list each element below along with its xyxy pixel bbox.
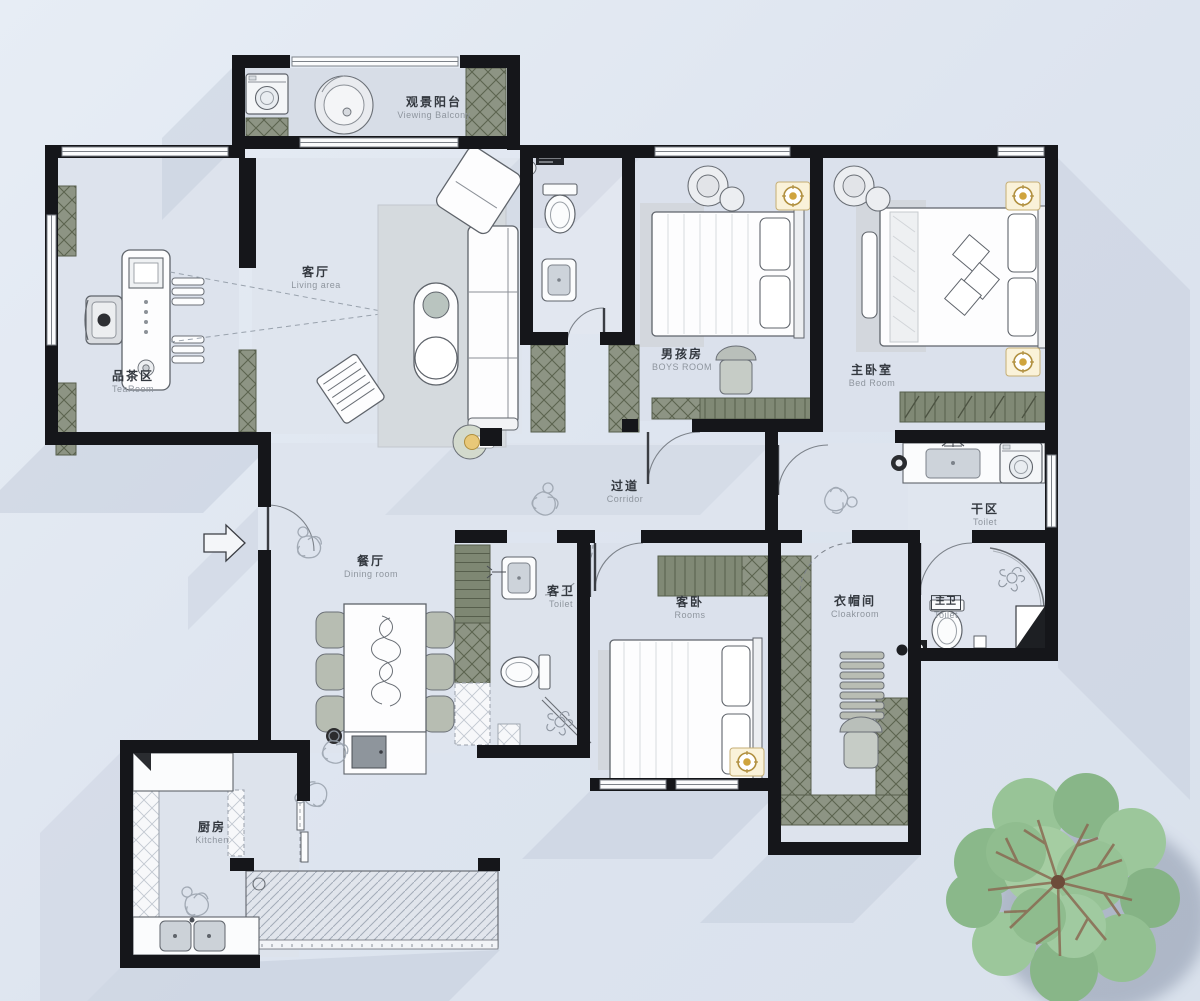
boys-desk <box>700 398 812 419</box>
cloakroom-chair <box>840 717 882 768</box>
guest-bookshelf <box>658 556 742 596</box>
dry-washing-machine-icon <box>1000 443 1042 483</box>
floor-plan: 观景阳台 Viewing Balcony 客厅 Living area 品茶区 … <box>0 0 1200 1001</box>
guest-bottom-window-2 <box>676 780 738 789</box>
guest-nightstand <box>730 748 764 776</box>
tea-chair <box>85 296 122 344</box>
master-top-window <box>998 147 1044 156</box>
boys-nightstand <box>776 182 810 210</box>
tearoom-top-window <box>62 147 228 156</box>
hall-cabinet-right <box>609 345 639 432</box>
kitchen-tall-unit <box>228 790 244 856</box>
balcony-cabinet <box>466 68 506 138</box>
hall-toilet-icon <box>543 184 577 233</box>
tree-trunk <box>1051 875 1065 889</box>
balcony-sliding-window <box>300 138 458 147</box>
ladder-shelf <box>840 652 884 719</box>
terrace <box>246 871 498 949</box>
guest-toilet-icon <box>501 655 550 689</box>
tearoom-cabinet-top <box>56 186 76 256</box>
master-nightstand-top <box>1006 182 1040 210</box>
dry-area-right-window <box>1047 455 1056 527</box>
cloakroom-wardrobe-bottom <box>781 795 908 825</box>
wall-sconce-icon <box>891 455 907 471</box>
tea-table <box>122 250 170 390</box>
boys-bed <box>652 210 804 338</box>
guest-bottom-window-1 <box>600 780 666 789</box>
tea-flower-icon <box>138 360 154 376</box>
kitchen-counter-left <box>133 791 159 917</box>
shower-mat <box>498 724 520 746</box>
master-bed <box>880 206 1046 348</box>
master-wardrobe <box>900 392 1045 422</box>
sofa <box>468 226 518 430</box>
balcony-washing-machine-icon <box>246 74 288 114</box>
master-nightstand-bottom <box>1006 348 1040 376</box>
hall-sink-icon <box>542 259 576 301</box>
lounge-chair-center <box>414 283 458 385</box>
tree <box>946 773 1200 1001</box>
tearoom-left-window <box>47 215 56 345</box>
guest-vanity <box>502 557 536 599</box>
dry-area <box>891 441 1045 483</box>
cloakroom-wardrobe-left <box>781 556 811 806</box>
balcony-top-window <box>292 57 458 66</box>
dining-tall-cabinet <box>455 545 490 623</box>
floor-plan-drawing <box>0 0 1200 1001</box>
master-toilet-icon <box>930 600 964 649</box>
hall-cabinet-left <box>531 345 565 432</box>
dining-table <box>344 604 426 732</box>
boys-room <box>640 166 810 484</box>
shower-niche <box>1016 606 1045 648</box>
bed-bench <box>862 232 877 318</box>
boys-top-window <box>655 147 790 156</box>
boys-chair <box>716 346 756 394</box>
balcony-fan-icon <box>315 76 373 134</box>
